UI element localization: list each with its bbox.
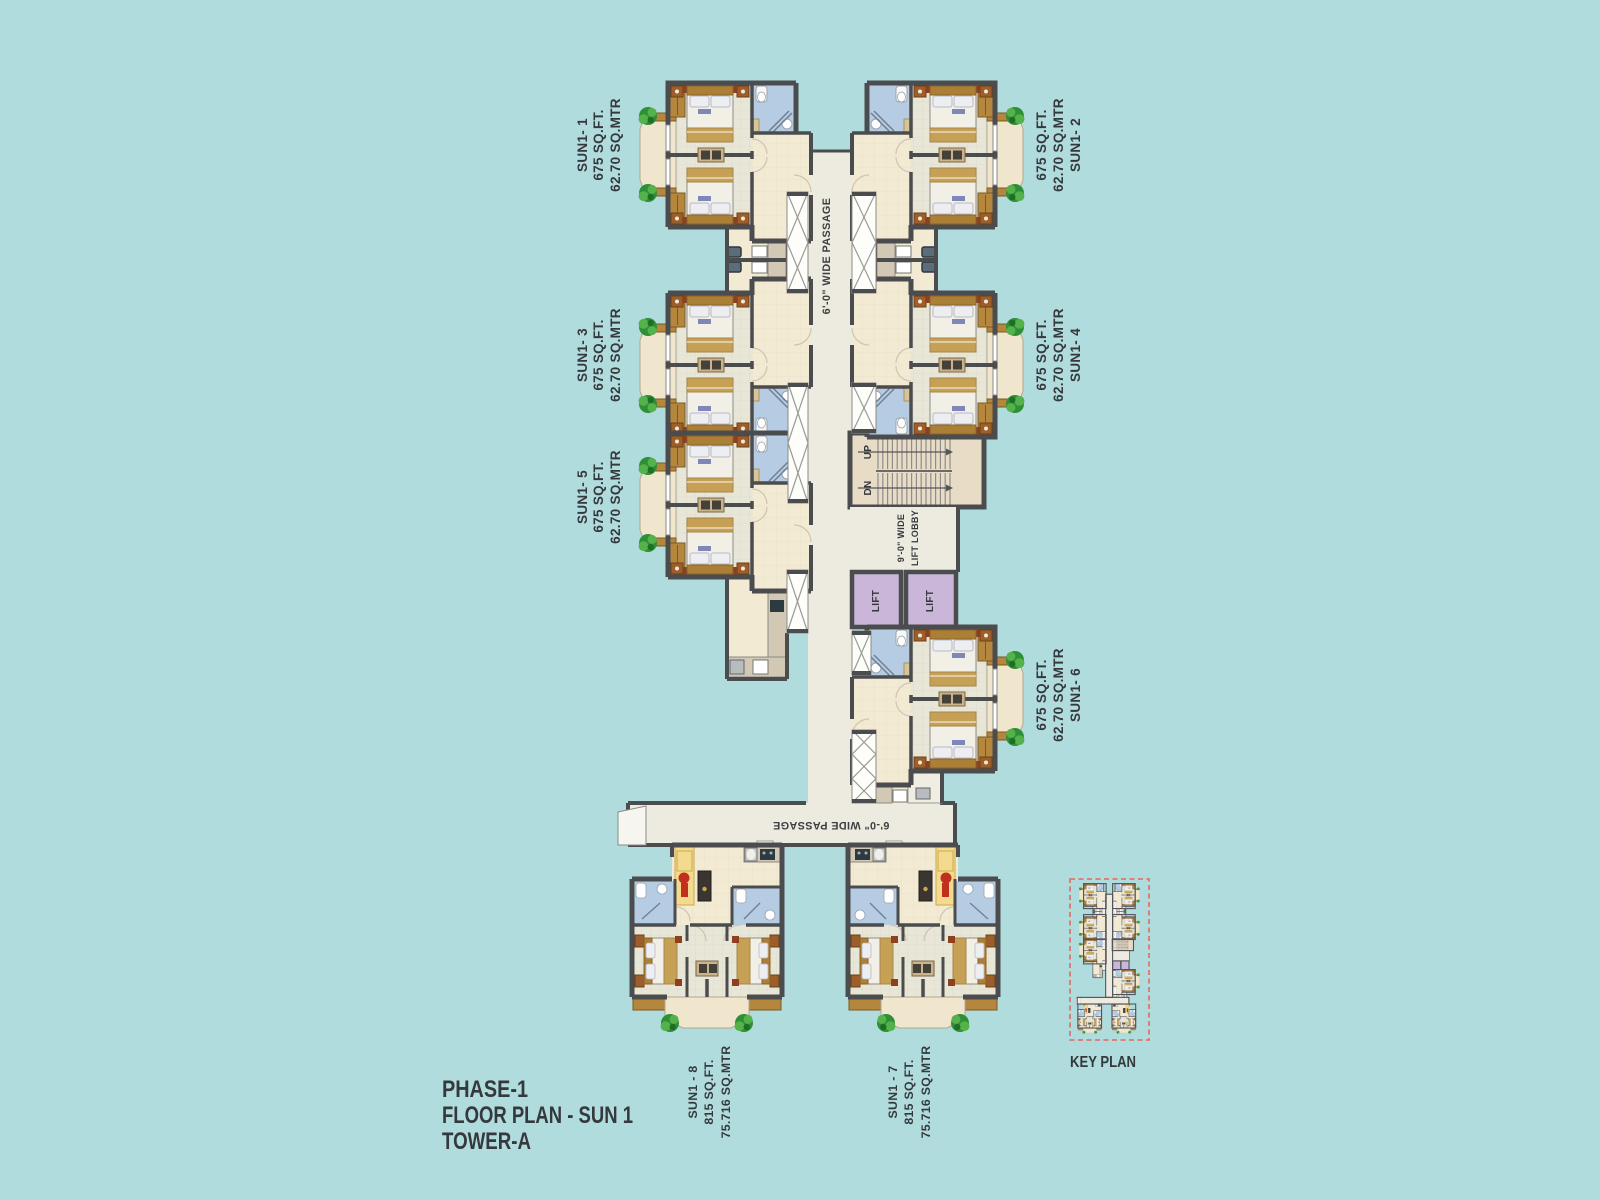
svg-text:SUN1- 5: SUN1- 5 [575,470,590,524]
svg-text:FLOOR PLAN - SUN 1: FLOOR PLAN - SUN 1 [442,1102,633,1129]
svg-text:KEY PLAN: KEY PLAN [1070,1054,1136,1071]
svg-text:62.70 SQ.MTR: 62.70 SQ.MTR [608,98,623,192]
svg-text:75.716 SQ.MTR: 75.716 SQ.MTR [919,1046,933,1139]
svg-text:LIFT: LIFT [871,590,882,612]
svg-text:6'-0" WIDE PASSAGE: 6'-0" WIDE PASSAGE [821,198,833,315]
svg-text:815 SQ.FT.: 815 SQ.FT. [702,1059,716,1124]
svg-text:675 SQ.FT.: 675 SQ.FT. [591,461,606,532]
svg-text:UP: UP [863,445,874,460]
svg-text:SUN1- 1: SUN1- 1 [575,118,590,172]
svg-text:SUN1- 6: SUN1- 6 [1068,668,1083,722]
svg-text:PHASE-1: PHASE-1 [442,1076,528,1103]
svg-text:62.70 SQ.MTR: 62.70 SQ.MTR [1051,648,1066,742]
svg-text:9'-0" WIDE: 9'-0" WIDE [896,514,906,562]
svg-text:LIFT LOBBY: LIFT LOBBY [910,510,920,566]
svg-text:SUN1- 3: SUN1- 3 [575,328,590,382]
svg-text:675 SQ.FT.: 675 SQ.FT. [591,319,606,390]
svg-text:62.70 SQ.MTR: 62.70 SQ.MTR [1051,308,1066,402]
svg-text:815 SQ.FT.: 815 SQ.FT. [902,1059,916,1124]
svg-text:675 SQ.FT.: 675 SQ.FT. [1034,659,1049,730]
svg-text:75.716 SQ.MTR: 75.716 SQ.MTR [719,1046,733,1139]
svg-text:SUN1 - 7: SUN1 - 7 [886,1066,900,1119]
svg-text:DN: DN [863,480,874,495]
svg-text:675 SQ.FT.: 675 SQ.FT. [1034,109,1049,180]
svg-text:SUN1 - 8: SUN1 - 8 [686,1066,700,1119]
svg-text:SUN1- 4: SUN1- 4 [1068,328,1083,382]
svg-text:TOWER-A: TOWER-A [442,1128,531,1155]
svg-text:675 SQ.FT.: 675 SQ.FT. [1034,319,1049,390]
svg-text:62.70 SQ.MTR: 62.70 SQ.MTR [1051,98,1066,192]
svg-text:62.70 SQ.MTR: 62.70 SQ.MTR [608,308,623,402]
svg-text:LIFT: LIFT [925,590,936,612]
svg-text:675 SQ.FT.: 675 SQ.FT. [591,109,606,180]
svg-text:6'-0" WIDE PASSAGE: 6'-0" WIDE PASSAGE [773,819,890,831]
svg-text:62.70 SQ.MTR: 62.70 SQ.MTR [608,450,623,544]
svg-text:SUN1- 2: SUN1- 2 [1068,118,1083,172]
